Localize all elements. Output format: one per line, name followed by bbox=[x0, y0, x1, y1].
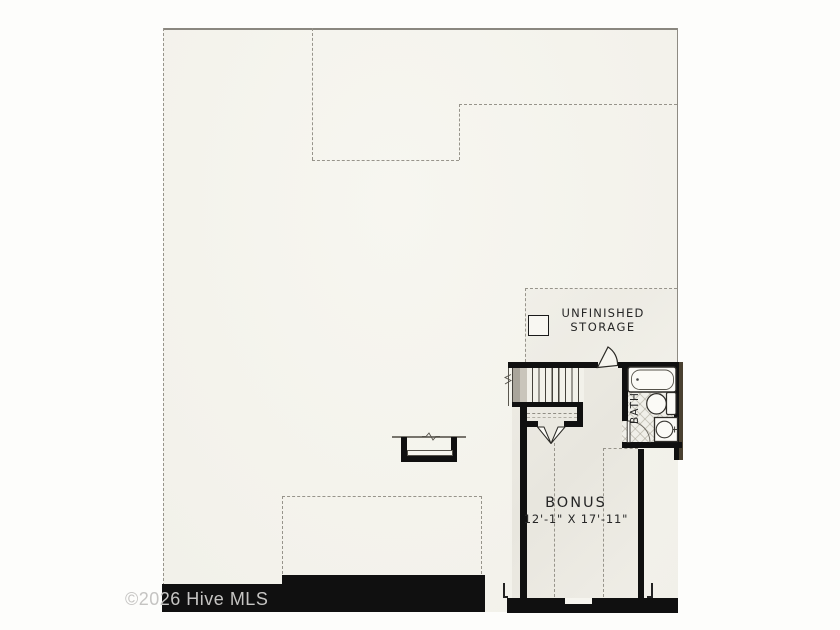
roof-break-line bbox=[312, 160, 459, 161]
roof-break-line bbox=[459, 104, 460, 160]
wall-return-tick bbox=[503, 596, 508, 598]
attic-outline-right bbox=[677, 28, 679, 365]
bottom-wall-right bbox=[507, 598, 678, 613]
floor-plan: UNFINISHED STORAGE BONUS 12'-1" X 17'-11… bbox=[0, 0, 840, 630]
attic-outline-left bbox=[163, 28, 164, 586]
roof-break-line bbox=[459, 104, 677, 105]
stair-open-edge bbox=[508, 362, 509, 406]
bottom-wall-middle bbox=[282, 575, 485, 612]
bonus-entry-wall-right bbox=[564, 421, 580, 427]
storage-boundary-line bbox=[525, 288, 526, 362]
mls-watermark: ©2026 Hive MLS bbox=[125, 589, 285, 610]
attic-access-panel bbox=[528, 315, 549, 336]
roof-break-line bbox=[312, 28, 313, 160]
bonus-room-label: BONUS bbox=[520, 495, 632, 511]
stair-tread-shaded bbox=[513, 368, 520, 402]
storage-label-line2: STORAGE bbox=[548, 321, 658, 334]
storage-label-line1: UNFINISHED bbox=[548, 307, 658, 320]
stair-header-dashed-line bbox=[527, 417, 577, 418]
stair-header-dashed-line bbox=[527, 413, 577, 414]
attic-outline-top bbox=[163, 28, 678, 30]
wall-return-tick bbox=[647, 596, 653, 598]
stair-top-wall bbox=[508, 362, 598, 368]
bath-label: BATH bbox=[627, 387, 643, 429]
storage-boundary-line bbox=[525, 288, 677, 289]
dormer-window-sill bbox=[407, 450, 453, 456]
bonus-right-wall bbox=[638, 449, 644, 598]
bath-bottom-wall bbox=[622, 442, 682, 448]
dormer-window bbox=[401, 456, 457, 462]
dormer-roof-outline bbox=[282, 496, 482, 574]
bonus-window bbox=[565, 598, 592, 605]
bonus-ceiling-break-line bbox=[603, 448, 638, 449]
stair-tread-shaded bbox=[520, 368, 527, 402]
bonus-room-dimensions: 12'-1" X 17'-11" bbox=[514, 512, 638, 526]
